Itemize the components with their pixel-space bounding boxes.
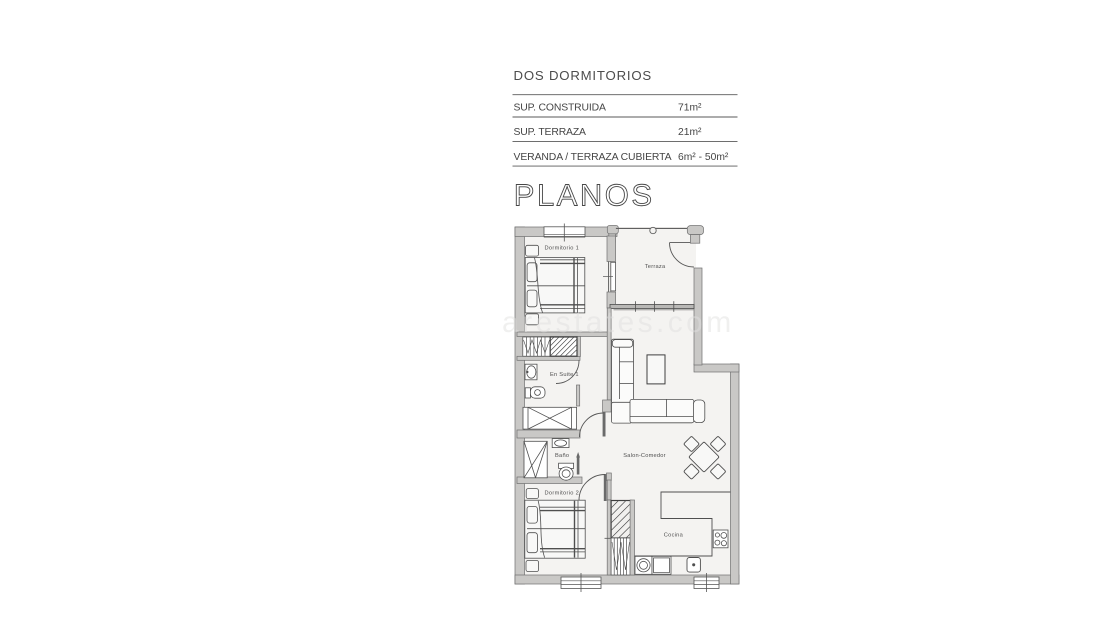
svg-text:6m² - 50m²: 6m² - 50m² xyxy=(678,152,729,163)
svg-text:Baño: Baño xyxy=(555,453,569,459)
svg-text:21m²: 21m² xyxy=(678,127,702,138)
svg-text:DOS DORMITORIOS: DOS DORMITORIOS xyxy=(514,68,653,83)
svg-text:Dormitorio 1: Dormitorio 1 xyxy=(545,245,580,251)
svg-text:Dormitorio 2: Dormitorio 2 xyxy=(545,490,580,496)
svg-text:SUP. CONSTRUIDA: SUP. CONSTRUIDA xyxy=(514,102,606,113)
svg-text:PLANOS: PLANOS xyxy=(514,178,655,213)
svg-text:Terraza: Terraza xyxy=(645,264,666,270)
svg-text:arestates.com: arestates.com xyxy=(502,306,735,339)
svg-text:En Suite 1: En Suite 1 xyxy=(550,372,579,378)
svg-text:Cocina: Cocina xyxy=(664,532,684,538)
svg-text:Salon-Comedor: Salon-Comedor xyxy=(623,453,665,459)
svg-text:71m²: 71m² xyxy=(678,102,702,113)
svg-text:SUP. TERRAZA: SUP. TERRAZA xyxy=(514,127,587,138)
svg-text:VERANDA / TERRAZA CUBIERTA: VERANDA / TERRAZA CUBIERTA xyxy=(514,152,672,163)
